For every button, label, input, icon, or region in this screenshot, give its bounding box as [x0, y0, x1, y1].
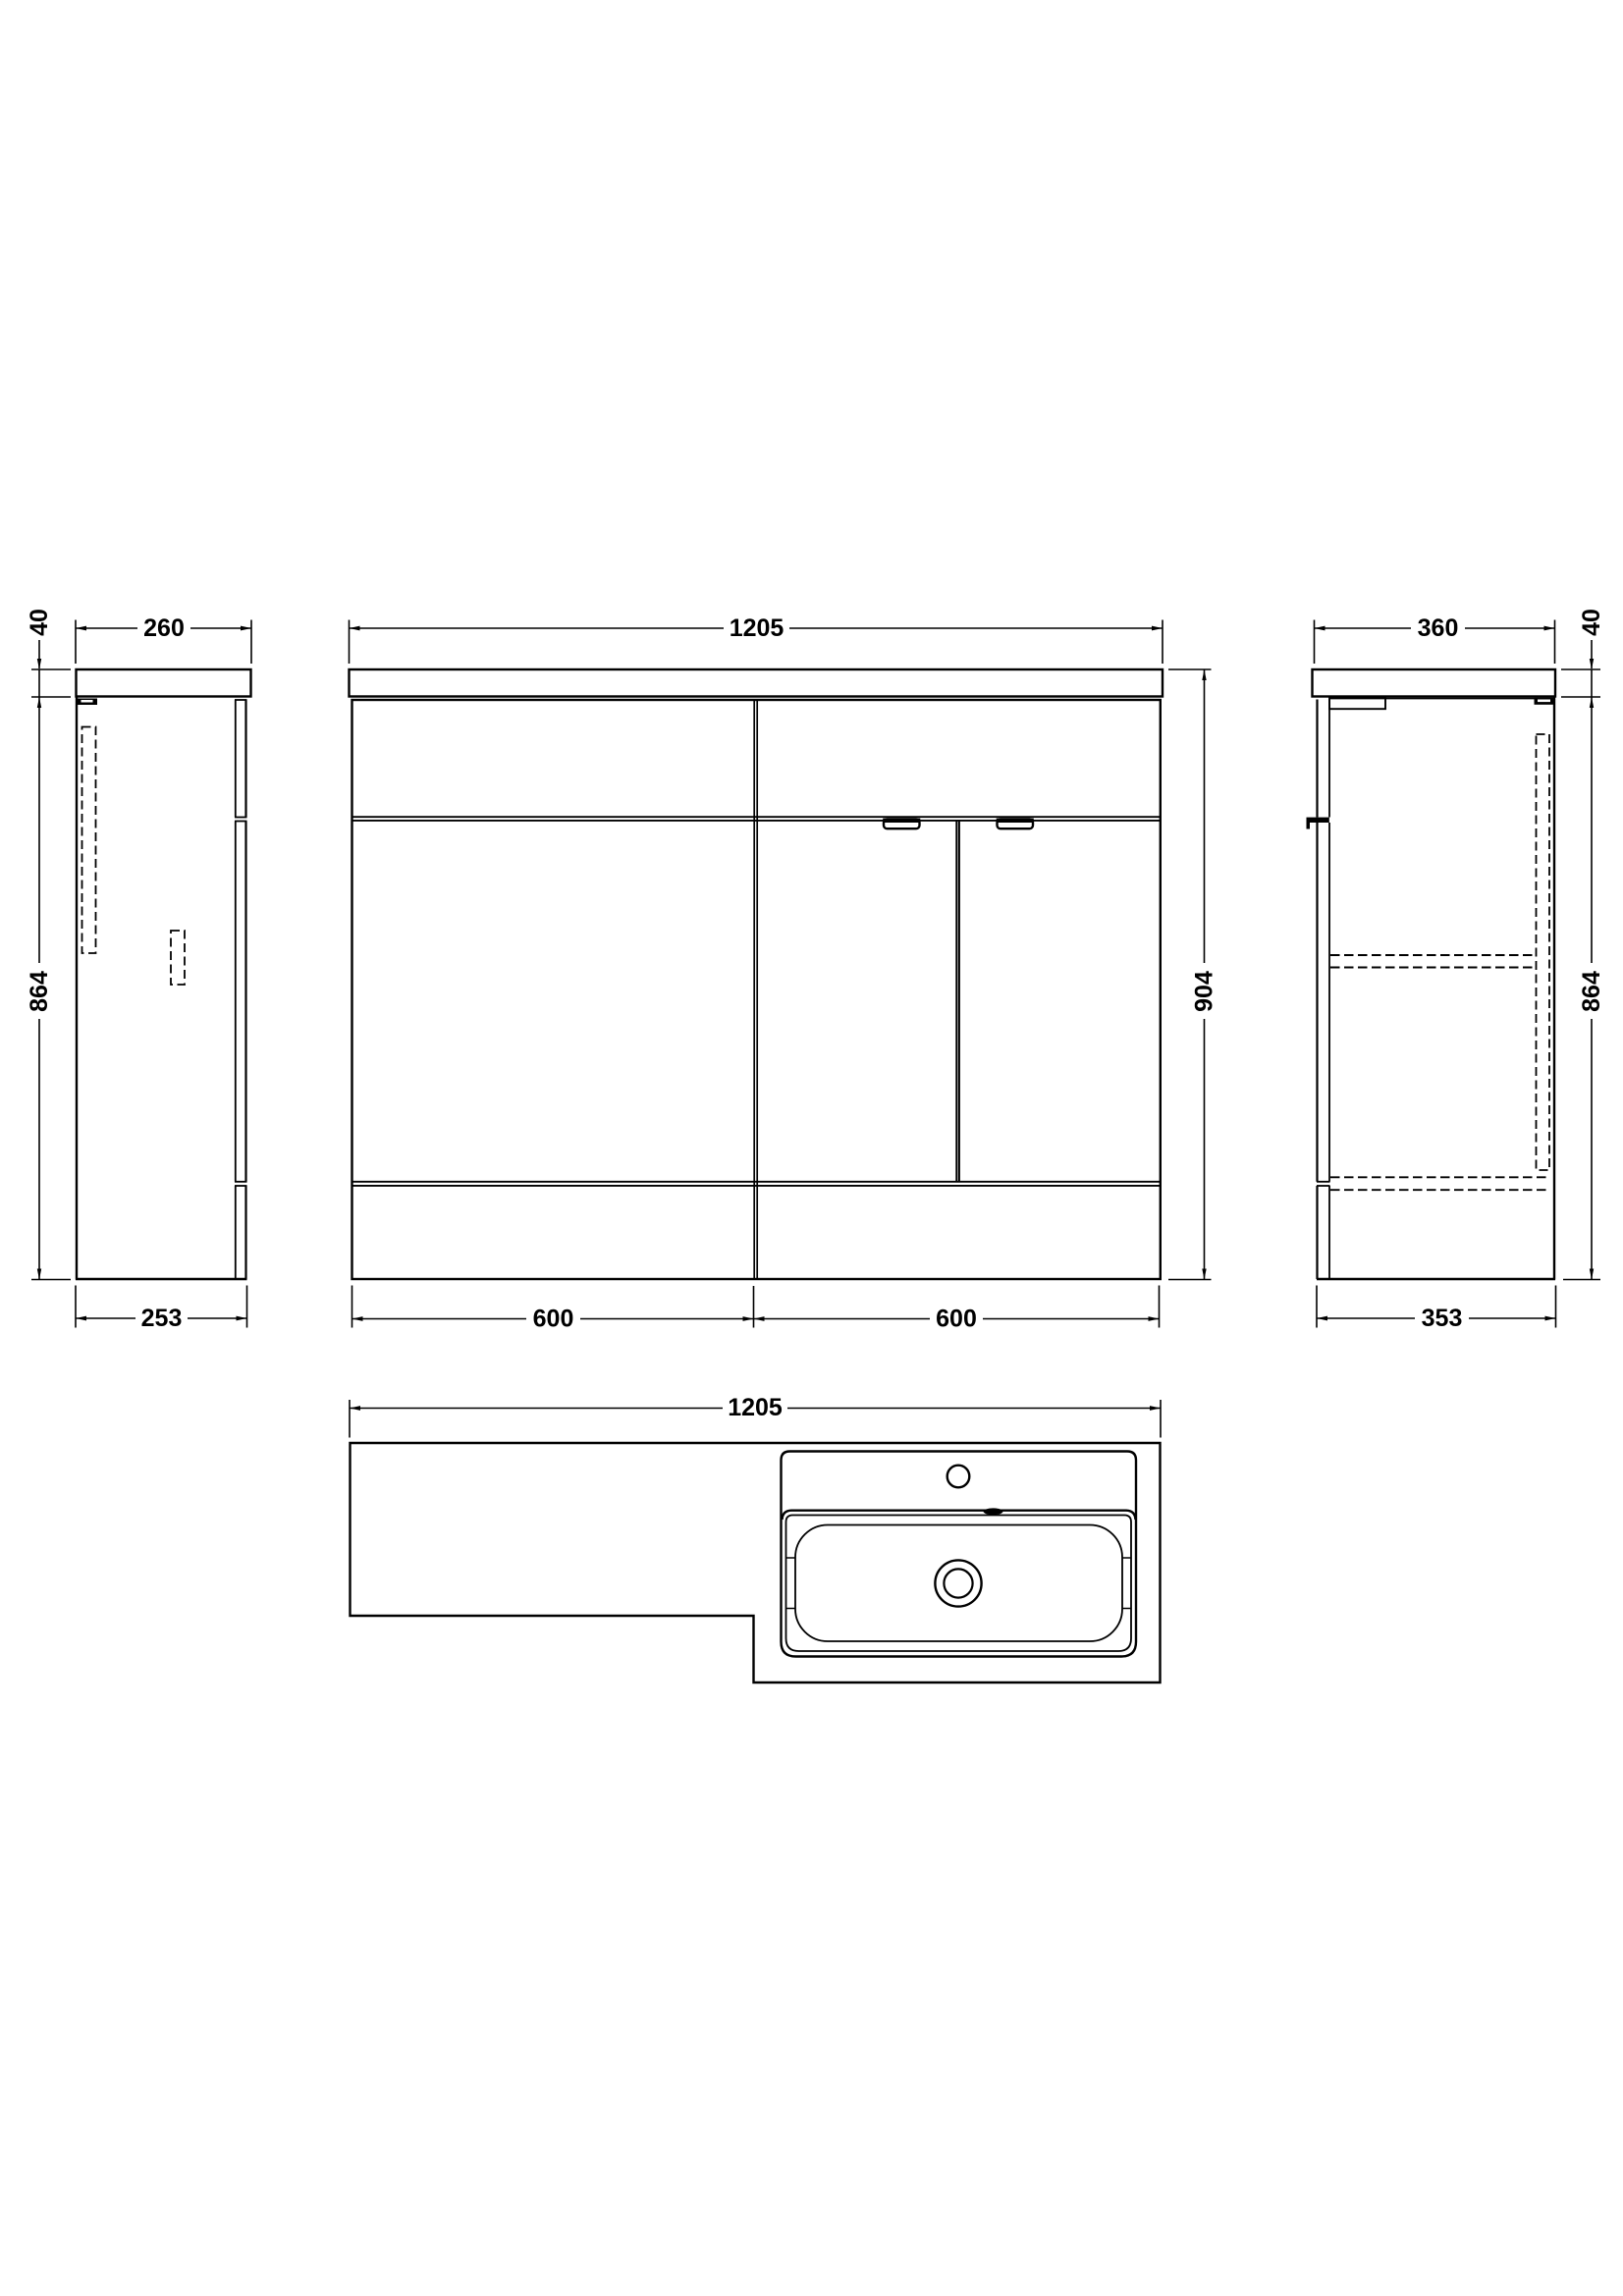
svg-text:904: 904	[1191, 971, 1218, 1012]
svg-text:353: 353	[1422, 1305, 1463, 1332]
svg-text:260: 260	[143, 614, 185, 642]
svg-text:1205: 1205	[730, 614, 784, 642]
svg-text:253: 253	[141, 1305, 183, 1332]
svg-text:360: 360	[1418, 614, 1459, 642]
svg-text:600: 600	[533, 1306, 574, 1333]
svg-text:864: 864	[1578, 971, 1605, 1012]
svg-text:1205: 1205	[728, 1394, 783, 1421]
svg-text:40: 40	[26, 609, 53, 636]
svg-text:600: 600	[936, 1306, 977, 1333]
svg-text:864: 864	[26, 971, 53, 1012]
svg-text:40: 40	[1578, 609, 1605, 636]
